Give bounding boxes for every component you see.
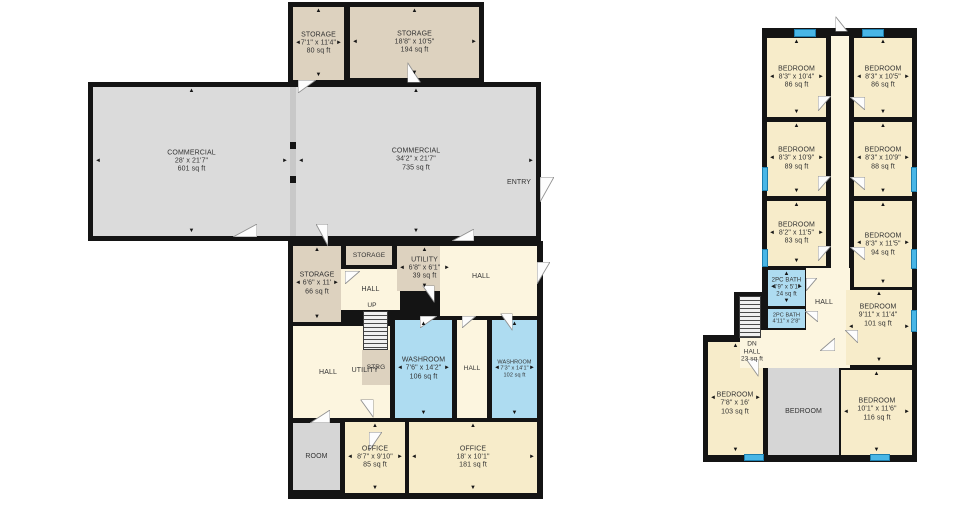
dim-arrow-icon: ►: [397, 454, 403, 460]
label-office-a: OFFICE8'7" x 9'10"85 sq ft: [357, 445, 393, 470]
dim-arrow-icon: ◄: [856, 155, 862, 161]
dim-arrow-icon: ◄: [352, 39, 358, 45]
dim-arrow-icon: ◄: [856, 240, 862, 246]
dim-arrow-icon: ◄: [298, 158, 304, 164]
door-swing-icon: [452, 229, 474, 241]
main-floor-stairs-icon: [363, 311, 388, 350]
door-swing-icon: [310, 410, 330, 423]
label-washroom-a: WASHROOM7'6" x 14'2"106 sq ft: [402, 357, 445, 382]
dim-arrow-icon: ▼: [733, 447, 739, 453]
window-icon: [762, 249, 768, 267]
dim-arrow-icon: ▼: [794, 109, 800, 115]
dim-arrow-icon: ◄: [399, 265, 405, 271]
dim-arrow-icon: ▲: [421, 321, 427, 327]
door-swing-icon: [820, 338, 835, 351]
door-swing-icon: [233, 224, 257, 237]
dim-arrow-icon: ◄: [347, 454, 353, 460]
second-floor-stairs-icon: [739, 296, 761, 338]
dim-arrow-icon: ▼: [413, 228, 419, 234]
dim-arrow-icon: ►: [755, 395, 761, 401]
dim-arrow-icon: ▼: [189, 228, 195, 234]
window-icon: [794, 29, 816, 37]
dim-arrow-icon: ▲: [794, 123, 800, 129]
dim-arrow-icon: ◄: [295, 280, 301, 286]
window-icon: [911, 167, 917, 192]
door-swing-icon: [805, 311, 818, 322]
dim-arrow-icon: ▲: [880, 123, 886, 129]
dim-arrow-icon: ▲: [880, 202, 886, 208]
entry-label: ENTRY: [507, 179, 531, 187]
label-office-b: OFFICE18' x 10'1"181 sq ft: [456, 445, 489, 470]
dim-arrow-icon: ◄: [411, 454, 417, 460]
dim-arrow-icon: ►: [444, 265, 450, 271]
door-swing-icon: [462, 316, 476, 328]
label-bedroom-2r: BEDROOM8'3" x 10'9"88 sq ft: [865, 147, 902, 172]
label-bedroom-1r: BEDROOM8'3" x 10'5"86 sq ft: [865, 65, 902, 90]
window-icon: [911, 310, 917, 332]
dim-arrow-icon: ◄: [843, 409, 849, 415]
label-commercial-right: COMMERCIAL34'2" x 21'7"735 sq ft: [392, 148, 440, 173]
dim-arrow-icon: ►: [444, 365, 450, 371]
door-swing-icon: [845, 330, 858, 343]
dim-arrow-icon: ▼: [314, 314, 320, 320]
dim-arrow-icon: ►: [904, 240, 910, 246]
label-bedroom-2l: BEDROOM8'3" x 10'9"89 sq ft: [778, 147, 815, 172]
door-swing-icon: [850, 177, 865, 190]
dim-arrow-icon: ▲: [876, 291, 882, 297]
dim-arrow-icon: ▼: [876, 357, 882, 363]
dim-arrow-icon: ◄: [769, 230, 775, 236]
door-swing-icon: [537, 262, 550, 284]
dim-arrow-icon: ▼: [512, 410, 518, 416]
label-storage-c: STORAGE6'6" x 11'66 sq ft: [300, 272, 335, 297]
floor-plan-canvas: STORAGE7'1" x 11'4"80 sq ft▲▼◄►STORAGE18…: [0, 0, 961, 517]
dim-arrow-icon: ►: [282, 158, 288, 164]
window-icon: [870, 454, 890, 461]
dim-arrow-icon: ◄: [770, 284, 776, 290]
label-storage-d: STORAGE: [353, 252, 385, 260]
dim-arrow-icon: ▲: [794, 39, 800, 45]
dim-arrow-icon: ►: [904, 155, 910, 161]
dim-arrow-icon: ▲: [422, 247, 428, 253]
dim-arrow-icon: ►: [904, 74, 910, 80]
dim-arrow-icon: ▲: [784, 271, 790, 277]
hall-label: HALL: [319, 369, 337, 377]
dim-arrow-icon: ◄: [856, 74, 862, 80]
label-bedroom-3l: BEDROOM8'2" x 11'5"83 sq ft: [778, 221, 815, 246]
label-room-a: ROOM: [305, 452, 327, 460]
dim-arrow-icon: ▼: [784, 298, 790, 304]
dim-arrow-icon: ▼: [422, 283, 428, 289]
dim-arrow-icon: ◄: [95, 158, 101, 164]
dim-arrow-icon: ▲: [874, 371, 880, 377]
dim-arrow-icon: ►: [529, 454, 535, 460]
window-icon: [762, 167, 768, 191]
dim-arrow-icon: ►: [528, 158, 534, 164]
label-bedroom-3r: BEDROOM8'3" x 11'5"94 sq ft: [865, 233, 902, 258]
dim-arrow-icon: ◄: [848, 324, 854, 330]
door-swing-icon: [850, 97, 865, 110]
dim-arrow-icon: ▲: [512, 321, 518, 327]
label-bedroom-mr: BEDROOM9'11" x 11'4"101 sq ft: [859, 304, 898, 329]
dim-arrow-icon: ▲: [470, 423, 476, 429]
dim-arrow-icon: ▲: [880, 39, 886, 45]
dim-arrow-icon: ▲: [314, 247, 320, 253]
window-icon: [862, 29, 884, 37]
dim-arrow-icon: ▼: [794, 188, 800, 194]
door-swing-icon: [540, 177, 554, 202]
dim-arrow-icon: ▼: [794, 258, 800, 264]
dim-arrow-icon: ▼: [880, 279, 886, 285]
door-swing-icon: [316, 224, 328, 246]
dim-arrow-icon: ◄: [769, 74, 775, 80]
door-swing-icon: [818, 96, 831, 111]
dim-arrow-icon: ▼: [880, 109, 886, 115]
dim-arrow-icon: ►: [797, 284, 803, 290]
label-hall-a: HALL: [362, 285, 380, 293]
dim-arrow-icon: ►: [818, 74, 824, 80]
dim-arrow-icon: ▲: [413, 88, 419, 94]
dim-arrow-icon: ▲: [733, 343, 739, 349]
dim-arrow-icon: ▼: [316, 72, 322, 78]
window-icon: [911, 249, 917, 269]
dim-arrow-icon: ▲: [794, 202, 800, 208]
label-storage-b: STORAGE18'8" x 10'5"194 sq ft: [395, 30, 435, 55]
room-corridor: [831, 36, 849, 268]
dim-arrow-icon: ►: [471, 39, 477, 45]
dn-hall-label: DNHALL23 sq ft: [741, 341, 763, 364]
door-swing-icon: [850, 247, 865, 260]
dim-arrow-icon: ◄: [769, 155, 775, 161]
door-swing-icon: [298, 80, 316, 93]
label-washroom-b: WASHROOM7'3" x 14'1"102 sq ft: [497, 359, 531, 378]
dim-arrow-icon: ▼: [874, 447, 880, 453]
dim-arrow-icon: ▼: [880, 188, 886, 194]
label-hall-b: HALL: [472, 273, 490, 281]
utility-label: UTILITY: [352, 367, 379, 375]
door-swing-icon: [361, 400, 374, 418]
dim-arrow-icon: ▲: [316, 8, 322, 14]
dim-arrow-icon: ▲: [412, 8, 418, 14]
door-swing-icon: [836, 17, 848, 32]
label-bedroom-br: BEDROOM10'1" x 11'6"116 sq ft: [857, 398, 896, 423]
label-storage-a: STORAGE7'1" x 11'4"80 sq ft: [301, 31, 336, 56]
dim-arrow-icon: ►: [904, 409, 910, 415]
door-swing-icon: [818, 176, 831, 191]
door-swing-icon: [806, 278, 817, 291]
label-bedroom-bl: BEDROOM7'8" x 16'103 sq ft: [717, 392, 754, 417]
dim-arrow-icon: ◄: [397, 365, 403, 371]
dim-arrow-icon: ▼: [470, 485, 476, 491]
label-bedroom-1l: BEDROOM8'3" x 10'4"86 sq ft: [778, 65, 815, 90]
dim-arrow-icon: ▲: [372, 423, 378, 429]
dim-arrow-icon: ▼: [421, 410, 427, 416]
door-swing-icon: [818, 246, 831, 261]
dim-arrow-icon: ►: [904, 324, 910, 330]
label-hall-c: HALL: [464, 365, 481, 373]
dim-arrow-icon: ◄: [494, 365, 500, 371]
dim-arrow-icon: ►: [818, 230, 824, 236]
dim-arrow-icon: ▼: [372, 485, 378, 491]
dim-arrow-icon: ◄: [710, 395, 716, 401]
window-icon: [744, 454, 764, 461]
dim-arrow-icon: ◄: [295, 40, 301, 46]
dim-arrow-icon: ►: [336, 40, 342, 46]
dim-arrow-icon: ►: [529, 365, 535, 371]
dim-arrow-icon: ▲: [189, 88, 195, 94]
label-hall-d: HALL: [815, 299, 833, 307]
label-commercial-left: COMMERCIAL28' x 21'7"601 sq ft: [167, 149, 215, 174]
dim-arrow-icon: ►: [818, 155, 824, 161]
dim-arrow-icon: ►: [333, 280, 339, 286]
label-utility-a: UTILITY6'8" x 6'1"39 sq ft: [409, 256, 441, 281]
label-bath-b: 2PC BATH4'11" x 2'8": [773, 312, 801, 325]
dim-arrow-icon: ▼: [412, 70, 418, 76]
up-label: UP: [367, 302, 376, 310]
door-swing-icon: [345, 271, 360, 284]
label-bedroom-bm: BEDROOM: [785, 407, 822, 415]
